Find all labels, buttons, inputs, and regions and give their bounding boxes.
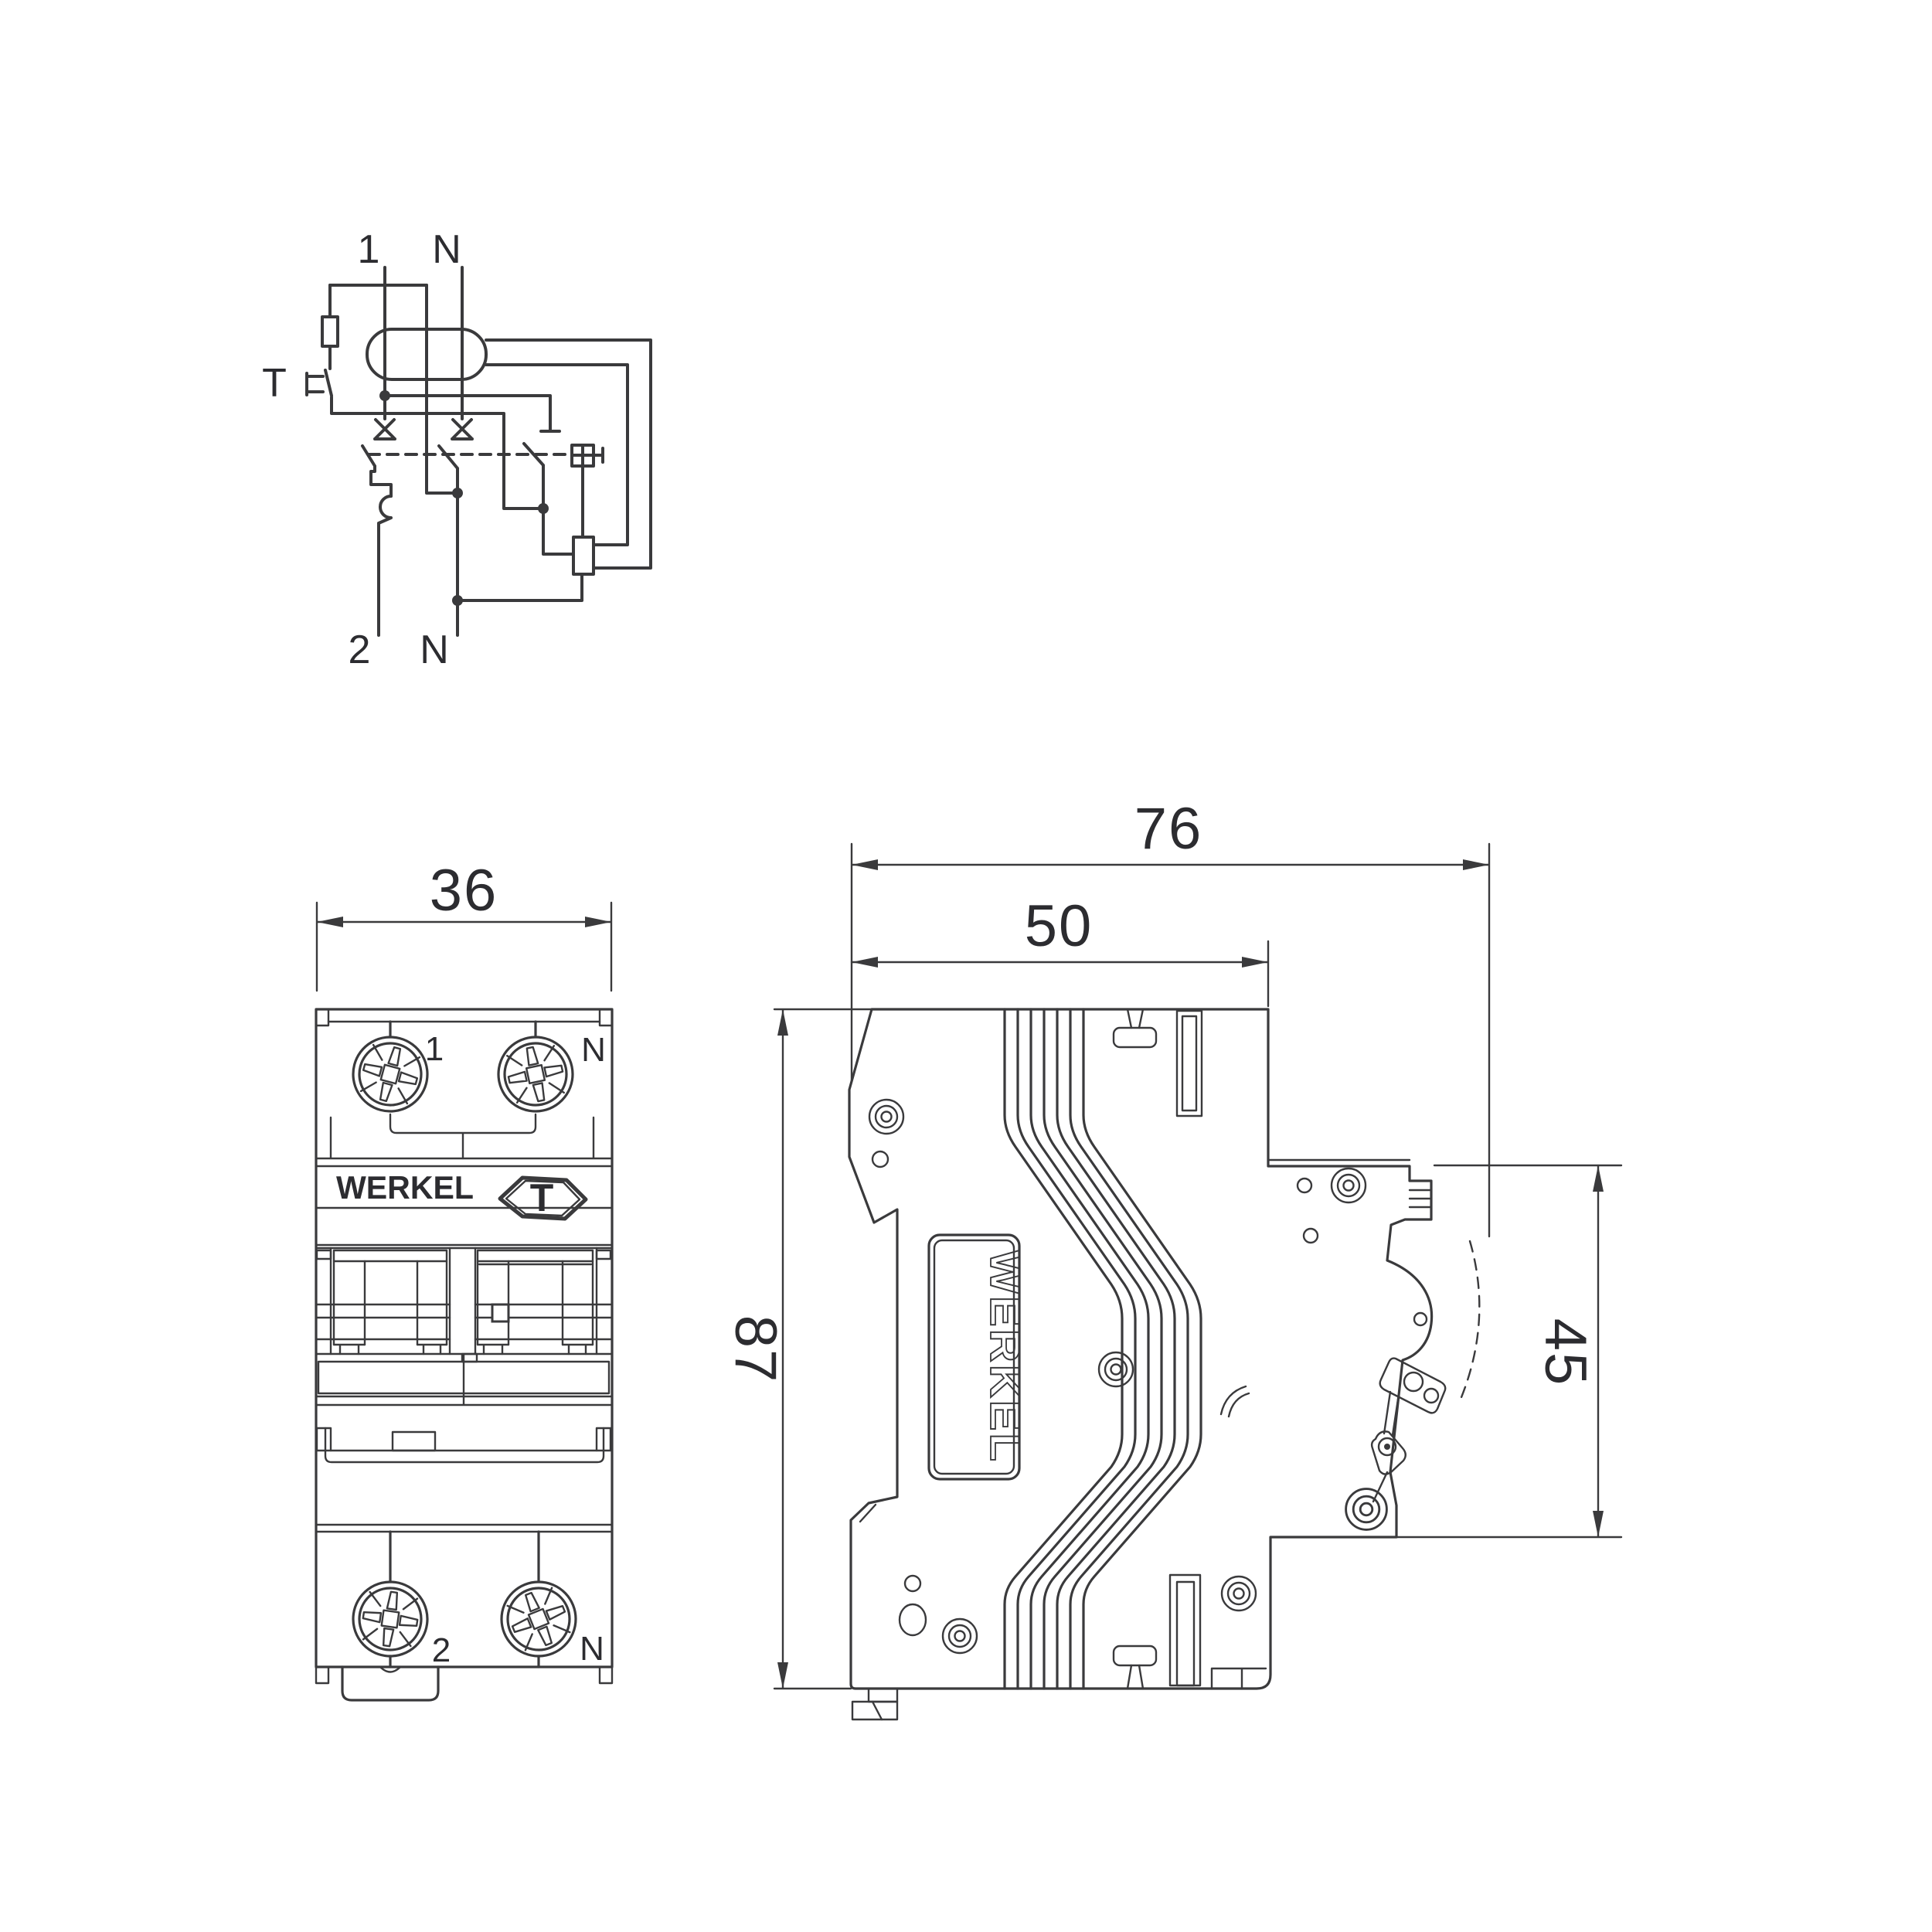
case-hole bbox=[1414, 1313, 1427, 1325]
case-detail-curve bbox=[1221, 1386, 1249, 1417]
dimension-front-width: 36 bbox=[317, 858, 611, 991]
dimension-50-value: 50 bbox=[1025, 893, 1094, 959]
rivet-din-latch bbox=[1346, 1489, 1387, 1530]
rivet bbox=[1332, 1168, 1366, 1202]
vent-slot-top bbox=[1177, 1011, 1202, 1116]
front-view-group: 1 N WERKEL T bbox=[316, 1009, 612, 1700]
rivet bbox=[869, 1100, 903, 1134]
din-clip-foot bbox=[852, 1689, 897, 1719]
side-view-group: WERKEL bbox=[849, 1009, 1479, 1719]
latch-travel-arc bbox=[1460, 1241, 1479, 1401]
dimension-36-value: 36 bbox=[430, 858, 498, 923]
case-hole bbox=[1298, 1179, 1311, 1192]
case-hole bbox=[905, 1576, 920, 1591]
amplifier-block bbox=[573, 537, 594, 574]
schematic-group: 1 N T bbox=[262, 227, 651, 672]
front-toggle-area bbox=[317, 1248, 611, 1405]
front-brand-logo: WERKEL bbox=[336, 1169, 474, 1206]
front-test-button-label: T bbox=[530, 1176, 554, 1219]
front-terminal-top-right-label: N bbox=[581, 1031, 606, 1069]
drawing-svg: 1 N T bbox=[0, 0, 1932, 1932]
rivet bbox=[943, 1619, 977, 1653]
amplifier-neutral-wire bbox=[457, 574, 582, 600]
terminal-screw-2 bbox=[349, 1577, 432, 1661]
case-seam-lines bbox=[1005, 1009, 1201, 1689]
edge-tab-bottom bbox=[1114, 1646, 1156, 1689]
front-terminal-bottom-right-label: N bbox=[580, 1630, 604, 1668]
din-adjuster-teeth bbox=[1410, 1190, 1431, 1207]
junction-dot bbox=[452, 488, 463, 498]
schematic-output-neutral-label: N bbox=[420, 628, 449, 672]
dimension-45-value: 45 bbox=[1532, 1318, 1598, 1387]
thermal-magnetic-trip bbox=[379, 496, 391, 635]
front-terminal-top-left-label: 1 bbox=[425, 1030, 444, 1068]
neutral-pole-blade bbox=[439, 446, 457, 635]
schematic-test-button-label: T bbox=[262, 361, 287, 406]
rivet bbox=[1222, 1577, 1256, 1611]
junction-dot bbox=[538, 503, 549, 514]
schematic-input-phase-label: 1 bbox=[358, 227, 380, 272]
schematic-input-neutral-label: N bbox=[432, 227, 461, 272]
label-window bbox=[393, 1432, 435, 1451]
front-test-button: T bbox=[500, 1176, 586, 1219]
side-body-outline bbox=[849, 1009, 1432, 1689]
dimension-87-value: 87 bbox=[723, 1315, 788, 1384]
toggle-handle bbox=[450, 1248, 475, 1354]
front-body-outline bbox=[316, 1009, 612, 1667]
vent-slot-bottom bbox=[1170, 1575, 1200, 1685]
contact-mark-phase bbox=[375, 420, 395, 439]
side-brand-plate: WERKEL bbox=[929, 1235, 1028, 1479]
test-resistor bbox=[322, 317, 338, 346]
ct-secondary-wires bbox=[486, 340, 651, 568]
auxiliary-contact bbox=[524, 444, 573, 554]
din-latch-mechanism bbox=[1372, 1241, 1479, 1502]
terminal-screw-n-bottom bbox=[491, 1571, 587, 1668]
trip-coil bbox=[572, 445, 603, 537]
edge-tab-top bbox=[1114, 1009, 1156, 1047]
front-top-right-tab bbox=[600, 1009, 612, 1026]
terminal-screw-1 bbox=[345, 1029, 436, 1120]
rivet bbox=[1099, 1352, 1133, 1386]
side-brand-logo: WERKEL bbox=[981, 1250, 1028, 1464]
terminal-screw-n-top bbox=[492, 1030, 580, 1118]
technical-drawing-canvas: 1 N T bbox=[0, 0, 1932, 1932]
case-hole bbox=[872, 1151, 888, 1167]
case-hole bbox=[1304, 1229, 1318, 1243]
pole-coupler bbox=[492, 1304, 509, 1321]
case-hole bbox=[900, 1604, 926, 1635]
dimensions-group: 36 76 50 87 45 bbox=[317, 796, 1621, 1689]
test-button-symbol bbox=[307, 373, 323, 395]
schematic-output-phase-label: 2 bbox=[349, 628, 371, 672]
dimension-body-depth: 50 bbox=[852, 893, 1268, 1006]
contact-mark-neutral bbox=[452, 420, 472, 439]
front-top-left-tab bbox=[316, 1009, 328, 1026]
dimension-din-section: 45 bbox=[1396, 1165, 1621, 1537]
front-terminal-bottom-left-label: 2 bbox=[432, 1631, 451, 1669]
dimension-76-value: 76 bbox=[1134, 796, 1203, 862]
dimension-total-depth: 76 bbox=[852, 796, 1489, 1236]
test-button-wire bbox=[325, 370, 543, 509]
